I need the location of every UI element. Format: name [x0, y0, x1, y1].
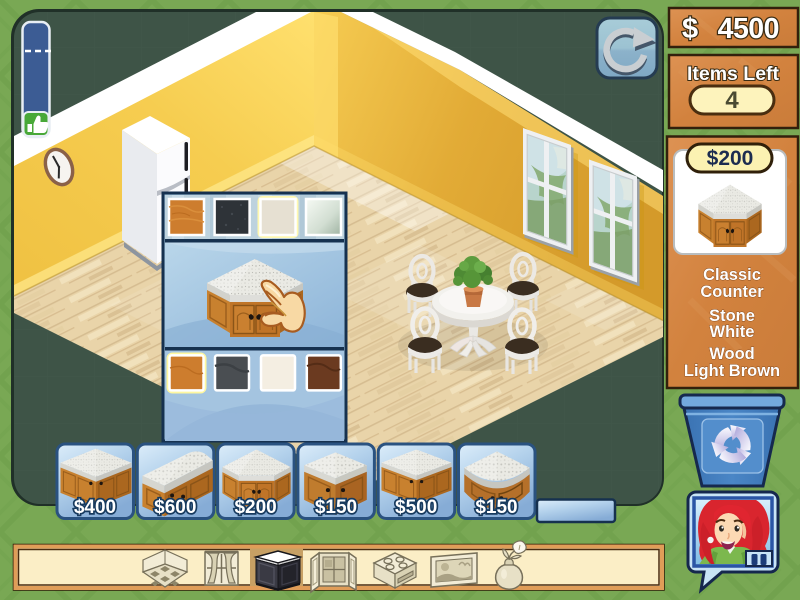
svg-text:$: $ [682, 13, 698, 45]
svg-text:$150: $150 [475, 497, 517, 518]
svg-text:4: 4 [725, 87, 739, 114]
svg-text:$600: $600 [154, 497, 196, 518]
svg-text:Items Left: Items Left [687, 63, 780, 85]
svg-text:Classic: Classic [703, 266, 761, 284]
svg-text:Counter: Counter [700, 283, 764, 301]
svg-text:$200: $200 [707, 147, 754, 170]
svg-text:$200: $200 [234, 497, 276, 518]
svg-text:$150: $150 [315, 497, 357, 518]
svg-text:4500: 4500 [718, 13, 779, 45]
svg-text:Light Brown: Light Brown [684, 362, 780, 380]
svg-text:$400: $400 [74, 497, 116, 518]
svg-text:Wood: Wood [709, 345, 755, 363]
svg-text:White: White [710, 323, 755, 341]
svg-text:$500: $500 [395, 497, 437, 518]
